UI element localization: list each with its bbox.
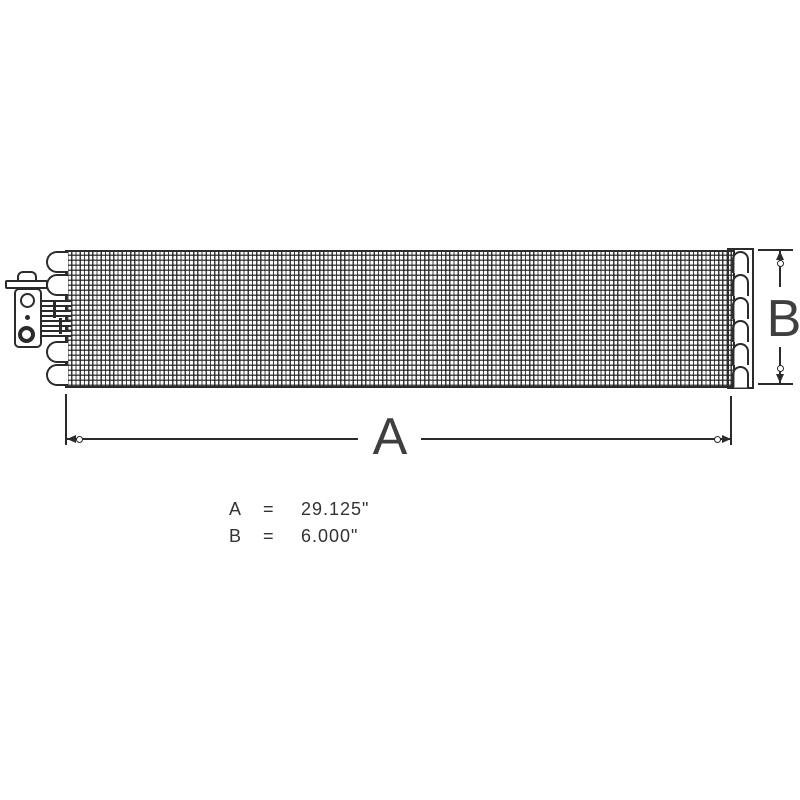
technical-drawing-canvas: A B A = 29.125" B = 6.000" xyxy=(0,0,800,800)
dimension-b-letter: B xyxy=(764,293,800,345)
expansion-valve-port-circle xyxy=(20,293,35,308)
tube-connector xyxy=(53,302,56,318)
legend-row-b: B = 6.000" xyxy=(229,526,369,553)
tube-return-bend-left xyxy=(46,341,68,363)
legend-b-label: B xyxy=(229,526,251,547)
tube-return-bend-right xyxy=(732,251,749,273)
dimension-a-line-right-segment xyxy=(421,438,732,440)
tube-return-bend-right xyxy=(732,297,749,319)
legend-b-value: 6.000" xyxy=(301,526,358,547)
tube-return-bend-right xyxy=(732,274,749,296)
valve-inlet-tube xyxy=(40,320,71,327)
legend-a-label: A xyxy=(229,499,251,520)
dimension-b-arrow-down-icon xyxy=(776,374,784,383)
dimension-a-arrow-left-dot-icon xyxy=(76,436,83,443)
dimension-a-letter: A xyxy=(358,411,422,463)
expansion-valve-center-dot xyxy=(25,315,30,320)
tube-return-bend-left xyxy=(46,364,68,386)
valve-inlet-tube xyxy=(40,330,71,337)
dimension-legend: A = 29.125" B = 6.000" xyxy=(229,499,369,553)
tube-return-bend-left xyxy=(46,251,68,273)
dimension-a-arrow-right-icon xyxy=(722,435,731,443)
tube-return-bend-right xyxy=(732,366,749,388)
legend-a-equals: = xyxy=(263,499,285,520)
dimension-b-arrow-up-dot-icon xyxy=(777,260,784,267)
dimension-a-arrow-right-dot-icon xyxy=(714,436,721,443)
coil-fin-grid xyxy=(65,250,735,388)
tube-return-bend-right xyxy=(732,320,749,342)
legend-a-value: 29.125" xyxy=(301,499,369,520)
legend-row-a: A = 29.125" xyxy=(229,499,369,526)
tube-return-bend-right xyxy=(732,343,749,365)
legend-b-equals: = xyxy=(263,526,285,547)
dimension-b-arrow-up-icon xyxy=(776,251,784,260)
expansion-valve-outlet-circle xyxy=(18,326,35,343)
dimension-b-tick-bottom xyxy=(758,383,793,385)
tube-connector xyxy=(59,318,62,334)
dimension-a-line-left-segment xyxy=(66,438,358,440)
dimension-b-arrow-down-dot-icon xyxy=(777,365,784,372)
tube-return-bend-left xyxy=(46,274,68,296)
dimension-a-arrow-left-icon xyxy=(67,435,76,443)
